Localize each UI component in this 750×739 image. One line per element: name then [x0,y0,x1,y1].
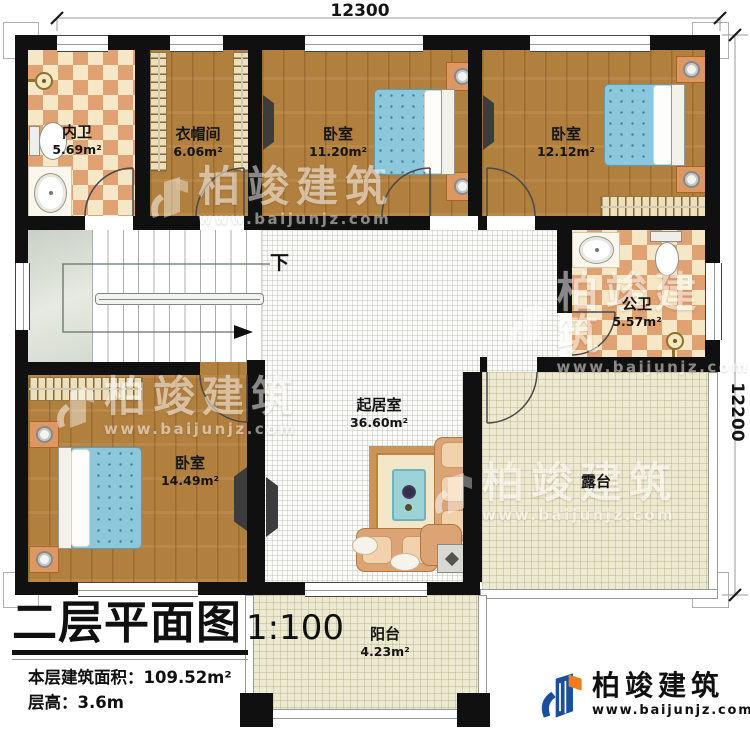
room-label-living: 起居室 36.60m² [350,396,408,430]
floor-cushion [390,553,420,571]
wall-segment [537,357,705,372]
floor-plan: 12300 12200 柏竣建筑 www.baijunjz.com 柏竣建筑 w… [0,0,750,739]
wall-segment [247,360,265,582]
wall-segment [108,35,170,50]
wardrobe [150,52,167,172]
drawing-scale: 1:100 [246,611,344,645]
wall-segment [15,582,78,595]
window [57,35,108,52]
room-area: 36.60m² [350,415,408,431]
wall-segment [423,35,530,50]
window [305,35,423,52]
wall-segment [427,582,480,595]
wall-segment [135,50,150,216]
nightstand [29,546,59,573]
tv [234,467,247,531]
wall-segment [15,362,200,375]
window [78,582,198,597]
stairs-direction-label: 下 [270,248,289,275]
wall-segment [480,357,487,372]
room-label-cloakroom: 衣帽间 6.06m² [173,125,222,159]
room-name: 内卫 [52,123,101,142]
stair-landing [28,230,92,362]
toilet [655,242,679,276]
wall-segment [705,340,720,372]
wall-segment [133,216,200,230]
nightstand [676,56,706,83]
room-name: 卧室 [161,454,219,473]
tv [483,95,494,150]
room-area: 4.23m² [360,644,409,660]
balcony-column [457,693,490,727]
nightstand [676,166,706,193]
wall-segment [15,216,85,230]
dimension-top: 12300 [330,1,389,21]
toilet-tank [650,231,682,242]
floor-area-value: 109.52m² [144,668,232,687]
company-logo-icon [536,668,584,722]
dimension-right: 12200 [727,382,747,441]
wall-segment [468,50,482,216]
window [705,263,722,340]
floor-height-line: 层高：3.6m [28,689,124,713]
bed-pillows [71,449,90,547]
terrace-railing [480,589,718,599]
room-name: 露台 [581,473,611,492]
room-name: 卧室 [537,125,595,144]
wall-segment [244,216,430,230]
wall-segment [557,230,572,313]
room-name: 阳台 [360,625,409,644]
room-name: 公卫 [612,295,661,314]
wall-segment [463,372,482,582]
shower-head [35,72,53,90]
room-area: 6.06m² [173,144,222,160]
title-underline-thin [12,659,248,660]
window [170,35,223,52]
drawing-title: 二层平面图 1:100 [12,600,344,645]
wall-segment [198,582,305,595]
sink [579,236,614,264]
company-name: 柏竣建筑 [592,672,750,700]
coffee-table [392,469,426,521]
room-area: 5.69m² [52,142,101,158]
room-area: 12.12m² [537,144,595,160]
room-area: 14.49m² [161,473,219,489]
shower-head [666,332,684,350]
wall-segment [478,216,487,230]
room-name: 卧室 [309,125,367,144]
title-underline [12,650,248,655]
floor-height-value: 3.6m [78,693,124,712]
wall-segment [248,50,262,216]
wardrobe [600,196,707,218]
sink [34,173,67,213]
drawing-title-text: 二层平面图 [12,600,242,645]
bed-headboard [441,89,455,175]
company-logo: 柏竣建筑 www.baijunjz.com [536,668,750,722]
bed-headboard [58,447,72,549]
bed-pillows [653,85,673,165]
floor-area-line: 本层建筑面积：109.52m² [28,664,232,688]
terrace-railing [708,372,718,599]
tv [263,95,274,150]
nightstand [29,421,59,448]
room-label-terrace: 露台 [581,473,611,492]
stair-railing [95,293,264,305]
balcony-railing [245,709,487,719]
company-url: www.baijunjz.com [592,703,750,718]
wall-segment [535,216,705,230]
tv [266,477,278,537]
floor-cushion [352,536,378,555]
window [15,263,30,330]
wall-segment [223,35,305,50]
room-name: 衣帽间 [173,125,222,144]
bed-headboard [671,84,685,166]
floor-area-label: 本层建筑面积： [28,668,144,687]
floor-height-label: 层高： [28,693,78,712]
balcony-column [240,693,273,727]
window [530,35,650,52]
room-label-bedroom-top: 卧室 11.20m² [309,125,367,159]
room-label-neiwei: 内卫 5.69m² [52,123,101,157]
room-area: 11.20m² [309,144,367,160]
room-label-gongwei: 公卫 5.57m² [612,295,661,329]
room-area: 5.57m² [612,314,661,330]
room-label-bedroom-topright: 卧室 12.12m² [537,125,595,159]
sliding-door [305,582,427,597]
room-label-bedroom-left: 卧室 14.49m² [161,454,219,488]
wall-segment [705,35,720,263]
wardrobe [28,377,143,401]
room-name: 起居室 [350,396,408,415]
room-label-balcony: 阳台 4.23m² [360,625,409,659]
